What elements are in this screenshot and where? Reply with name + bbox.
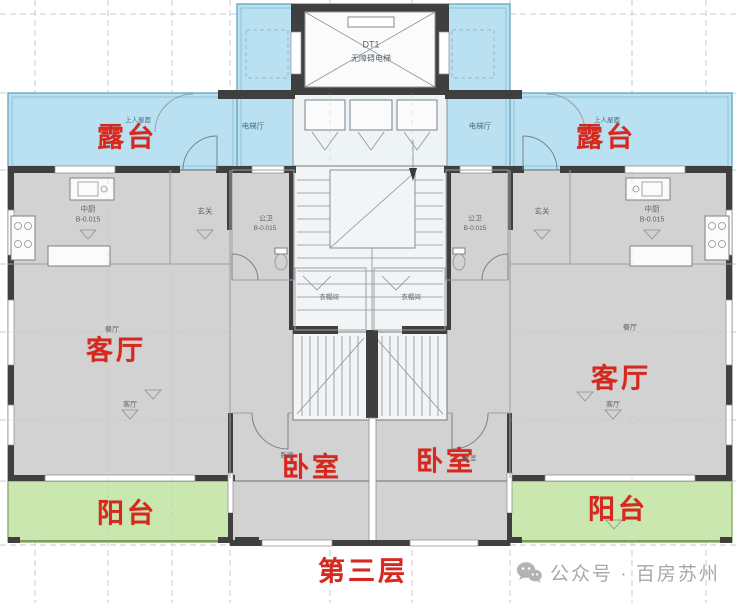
room-label-balcony-right: 阳台 <box>588 497 648 524</box>
room-label-living-right: 客厅 <box>591 366 651 393</box>
living-small-right-label: 客厅 <box>606 402 620 409</box>
floor-plan-page: 露台 露台 客厅 客厅 卧室 卧室 阳台 阳台 第三层 DT1 无障碍电梯 电梯… <box>0 0 740 603</box>
room-label-balcony-left: 阳台 <box>97 501 157 528</box>
watermark: 公众号 · 百房苏州 <box>516 559 720 586</box>
cloak-left-label: 衣帽间 <box>319 295 339 302</box>
cloak-right-label: 衣帽间 <box>401 295 421 302</box>
kitchen-left-level-label: B-0.015 <box>76 217 101 224</box>
living-small-left-label: 客厅 <box>123 402 137 409</box>
watermark-text: 公众号 · 百房苏州 <box>550 559 720 586</box>
roof-left-label: 上人屋面 <box>125 118 151 125</box>
kitchen-right-level-label: B-0.015 <box>640 217 665 224</box>
elevator-hall-left-label: 电梯厅 <box>242 122 265 130</box>
bath-left-level-label: B-0.015 <box>254 226 277 233</box>
dining-right-label: 餐厅 <box>623 325 637 332</box>
roof-right-label: 上人屋面 <box>594 118 620 125</box>
bedroom-small-left-label: 卧室 <box>281 453 294 460</box>
room-label-terrace-left: 露台 <box>97 125 157 152</box>
bath-right-label: 公卫 <box>468 216 482 223</box>
elevator-name-label: 无障碍电梯 <box>351 55 391 63</box>
room-label-living-left: 客厅 <box>86 338 146 365</box>
bath-right-level-label: B-0.015 <box>464 226 487 233</box>
kitchen-right-label: 中厨 <box>645 205 660 213</box>
bath-left-label: 公卫 <box>259 216 273 223</box>
kitchen-left-label: 中厨 <box>81 205 96 213</box>
foyer-right-label: 玄关 <box>535 207 550 215</box>
bedroom-small-right-label: 卧室 <box>464 456 477 463</box>
dining-left-label: 餐厅 <box>105 327 119 334</box>
foyer-left-label: 玄关 <box>198 207 213 215</box>
elevator-hall-right-label: 电梯厅 <box>469 122 492 130</box>
floor-title: 第三层 <box>318 559 408 586</box>
elevator-id-label: DT1 <box>362 41 379 50</box>
room-label-terrace-right: 露台 <box>576 125 636 152</box>
wechat-icon <box>516 561 543 584</box>
